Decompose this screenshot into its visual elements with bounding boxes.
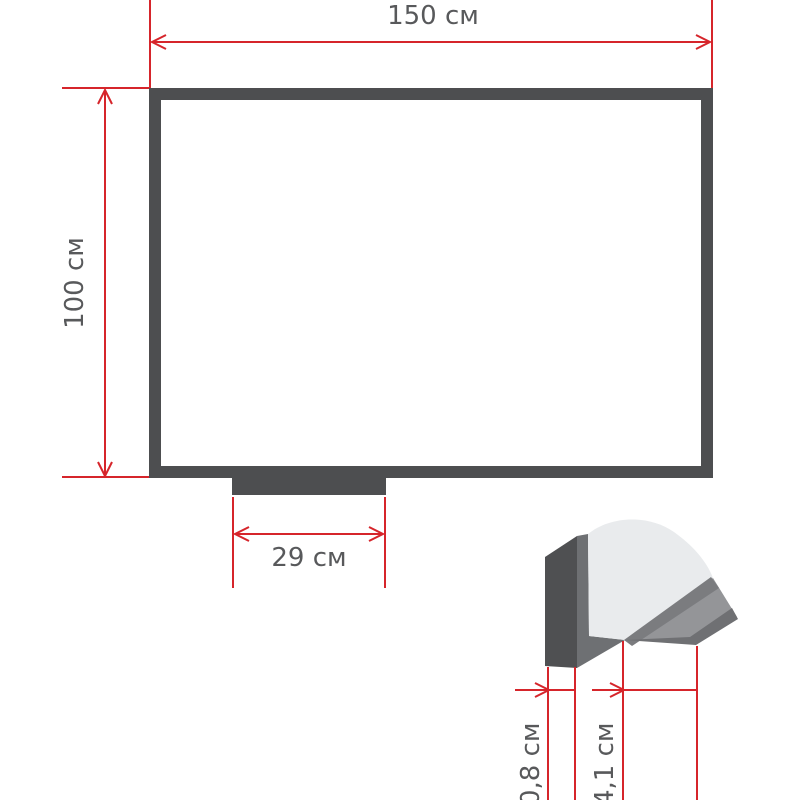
height-dimension-label: 100 см — [62, 233, 88, 333]
marker-tray-front-view — [232, 477, 386, 495]
tray-front-lip — [624, 608, 738, 645]
profile-detail-illustration — [545, 519, 738, 668]
board-surface — [588, 519, 713, 640]
tray-surface — [625, 578, 737, 643]
arrow-right-icon — [369, 527, 383, 541]
board-front-view — [149, 88, 713, 478]
arrow-right-icon — [696, 35, 710, 49]
tray-width-dimension-label: 29 см — [249, 545, 369, 571]
arrow-down-icon — [98, 462, 112, 476]
frame-depth-dimension-label: 0,8 см — [518, 716, 544, 800]
arrow-up-icon — [98, 90, 112, 104]
dimension-diagram: 150 см 100 см 29 см 0,8 см 4,1 см — [0, 0, 800, 800]
arrow-left-icon — [152, 35, 166, 49]
tray-depth-dimension-label: 4,1 см — [592, 716, 618, 800]
width-dimension-label: 150 см — [373, 3, 493, 29]
frame-inner-face — [577, 534, 625, 668]
frame-profile-face — [545, 536, 577, 668]
arrow-right-icon — [610, 683, 624, 697]
tray-back-edge — [624, 577, 719, 646]
arrow-left-icon — [235, 527, 249, 541]
arrow-right-icon — [535, 683, 549, 697]
